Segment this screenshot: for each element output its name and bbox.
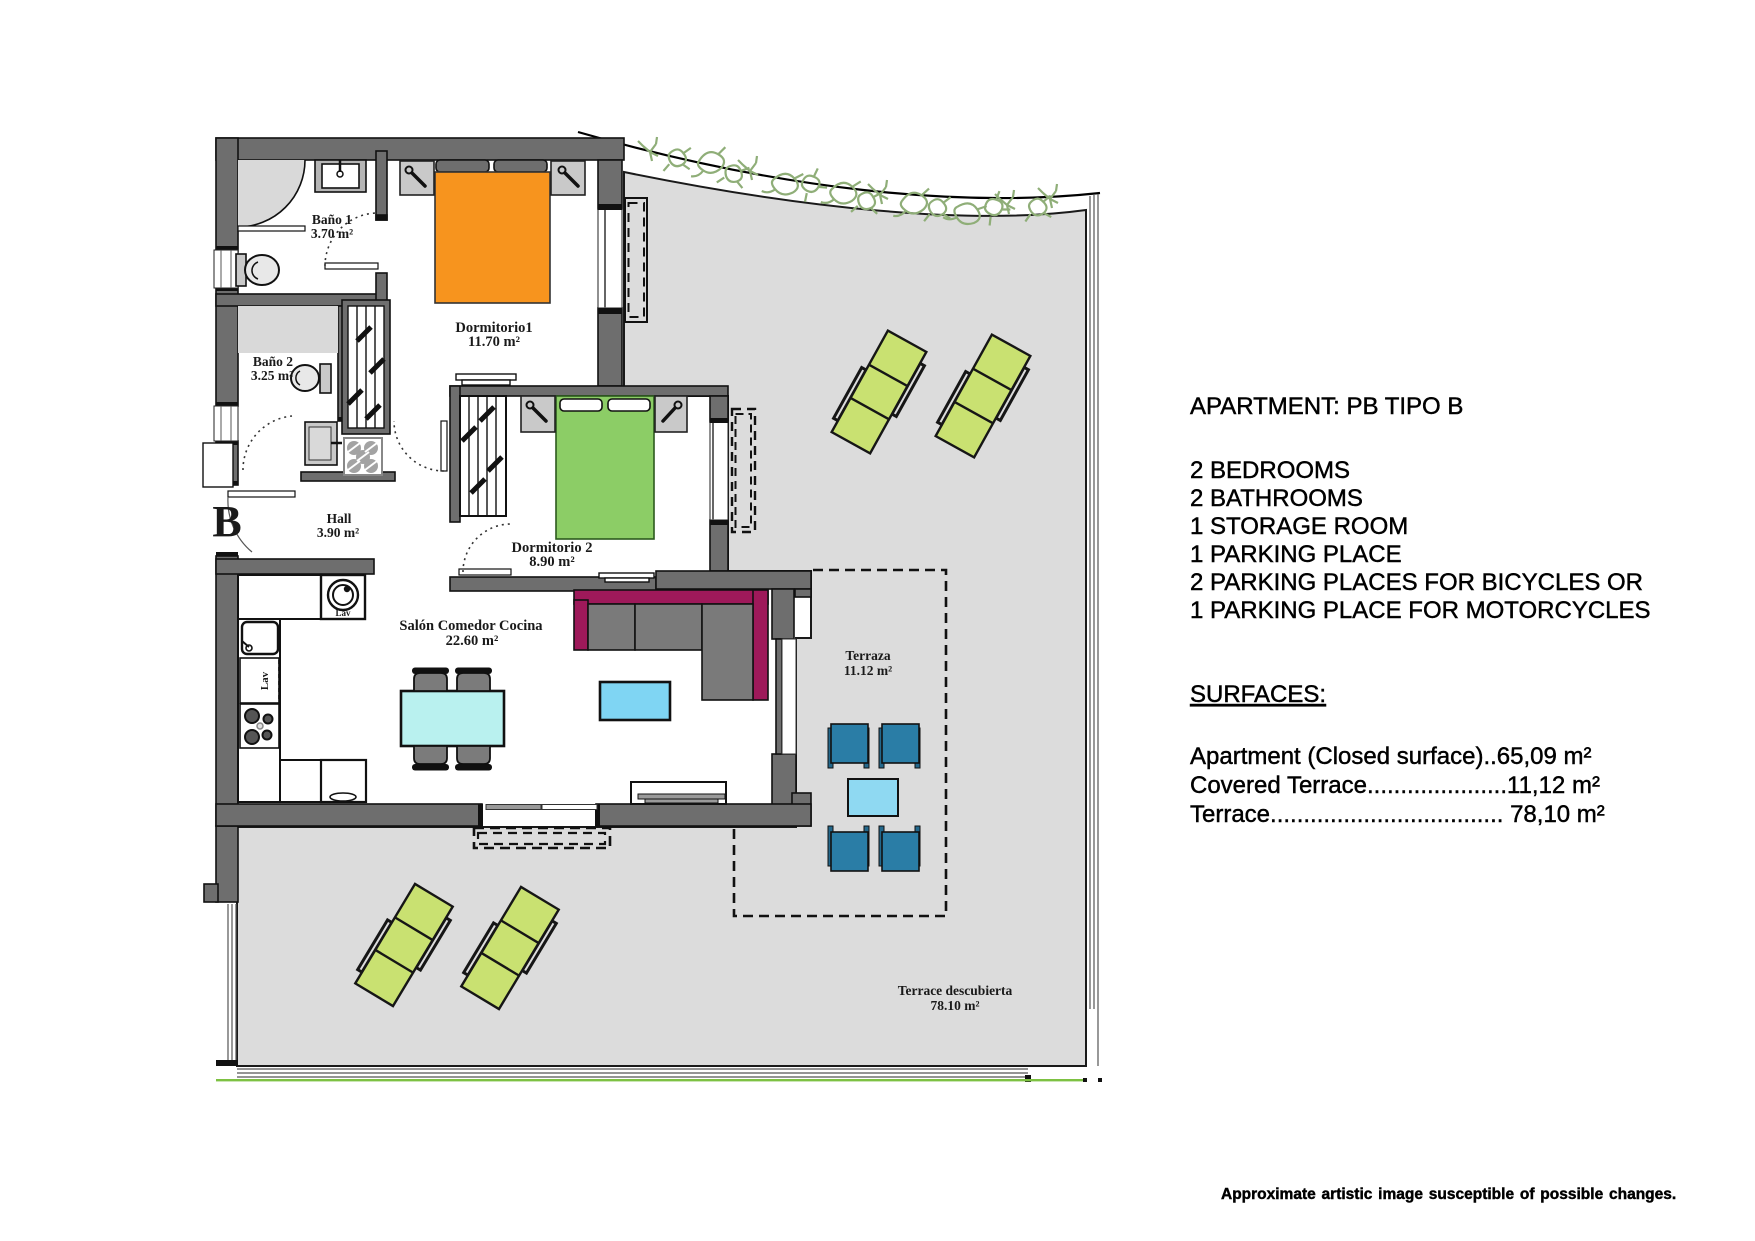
- svg-text:Baño 1: Baño 1: [312, 212, 352, 227]
- svg-text:3.90 m²: 3.90 m²: [317, 525, 359, 540]
- svg-text:2 PARKING PLACES FOR BICYCLES: 2 PARKING PLACES FOR BICYCLES OR: [1190, 569, 1643, 596]
- svg-text:8.90 m²: 8.90 m²: [529, 554, 574, 570]
- svg-text:11.12 m²: 11.12 m²: [844, 663, 892, 678]
- svg-text:Salón Comedor Cocina: Salón Comedor Cocina: [399, 618, 543, 634]
- svg-text:Approximate artistic image sus: Approximate artistic image susceptible o…: [1221, 1186, 1676, 1203]
- svg-text:Hall: Hall: [327, 511, 352, 526]
- svg-text:1 PARKING PLACE FOR MOTORCYCLE: 1 PARKING PLACE FOR MOTORCYCLES: [1190, 597, 1651, 624]
- svg-text:Lav: Lav: [335, 608, 351, 618]
- svg-text:78.10 m²: 78.10 m²: [930, 998, 979, 1013]
- svg-text:SURFACES:: SURFACES:: [1190, 681, 1326, 708]
- svg-text:1 STORAGE ROOM: 1 STORAGE ROOM: [1190, 513, 1408, 540]
- svg-text:Covered Terrace...............: Covered Terrace.....................11,1…: [1190, 772, 1600, 799]
- svg-text:Apartment (Closed surface)..65: Apartment (Closed surface)..65,09 m²: [1190, 743, 1592, 770]
- svg-text:2 BEDROOMS: 2 BEDROOMS: [1190, 457, 1350, 484]
- svg-text:2 BATHROOMS: 2 BATHROOMS: [1190, 485, 1363, 512]
- svg-text:APARTMENT: PB TIPO B: APARTMENT: PB TIPO B: [1190, 393, 1463, 420]
- svg-text:22.60 m²: 22.60 m²: [446, 633, 499, 649]
- svg-text:3.70 m²: 3.70 m²: [311, 226, 353, 241]
- svg-text:1 PARKING PLACE: 1 PARKING PLACE: [1190, 541, 1402, 568]
- svg-text:11.70 m²: 11.70 m²: [468, 334, 520, 350]
- svg-text:Terrace.......................: Terrace.................................…: [1190, 801, 1605, 828]
- svg-text:Terrace descubierta: Terrace descubierta: [898, 983, 1013, 998]
- svg-text:Lav: Lav: [259, 671, 271, 690]
- svg-text:Baño 2: Baño 2: [253, 354, 293, 369]
- svg-text:3.25 m²: 3.25 m²: [251, 368, 293, 383]
- svg-text:Terraza: Terraza: [845, 648, 890, 663]
- svg-text:B: B: [212, 497, 241, 546]
